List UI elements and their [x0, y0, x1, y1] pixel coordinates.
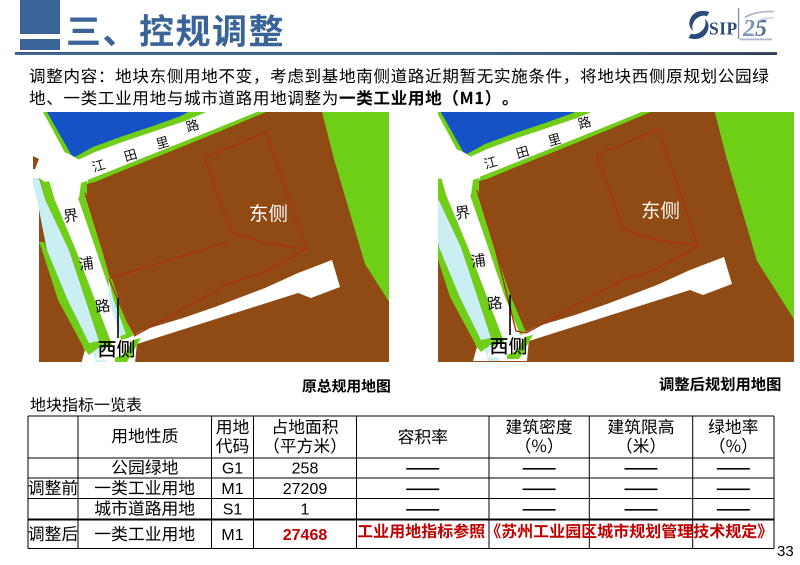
svg-text:27209: 27209 [283, 481, 328, 498]
svg-text:258: 258 [292, 461, 319, 478]
svg-text:G1: G1 [222, 461, 243, 478]
svg-text:M1: M1 [221, 481, 243, 498]
svg-text:M1: M1 [221, 527, 243, 544]
svg-text:27468: 27468 [283, 527, 328, 544]
svg-text:S1: S1 [223, 502, 243, 519]
svg-text:1: 1 [301, 502, 310, 519]
